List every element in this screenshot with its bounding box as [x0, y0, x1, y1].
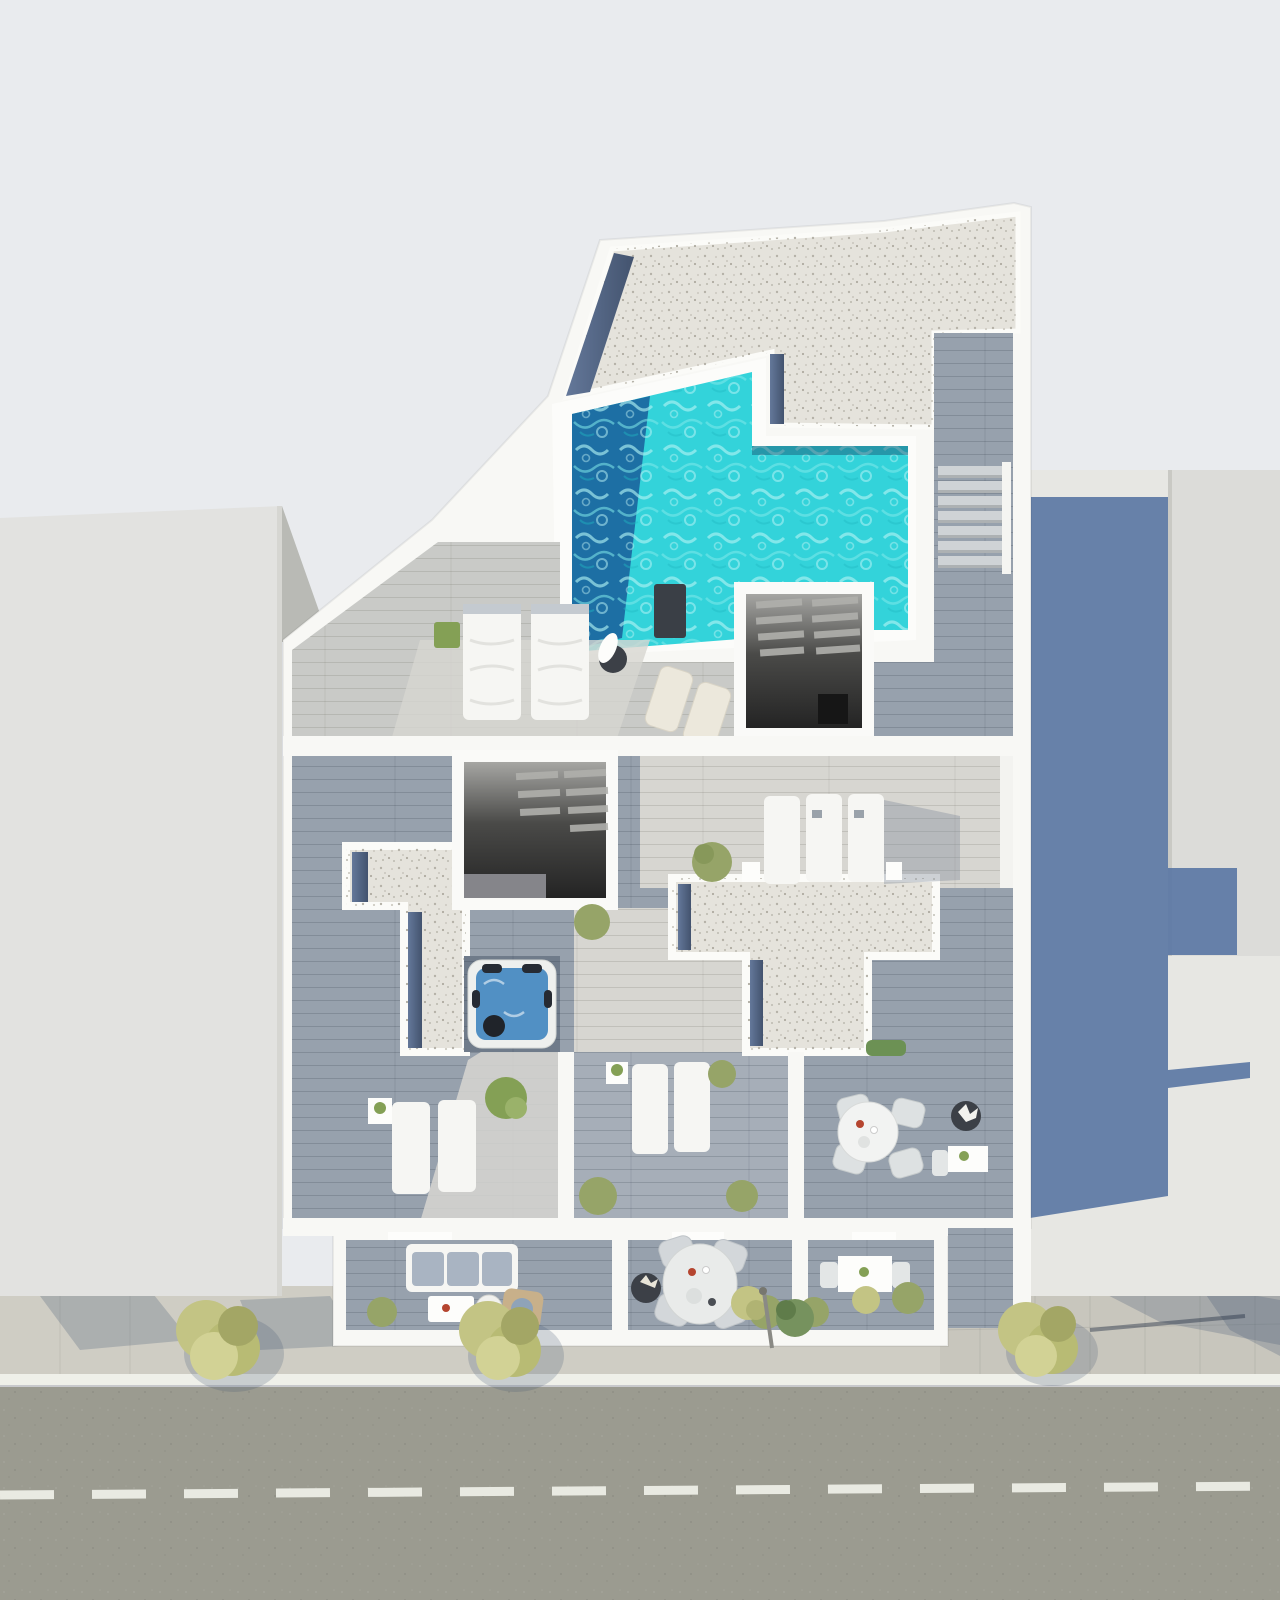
pool-arm-shadow-line [752, 446, 908, 455]
small-table [742, 862, 760, 882]
tree-small [852, 1286, 880, 1314]
round-dining-table [663, 1244, 737, 1324]
potted-plant [367, 1297, 397, 1327]
chair [932, 1150, 948, 1176]
stairwell-skylight-middle [452, 750, 618, 910]
sun-lounger [764, 796, 800, 884]
potted-plant [892, 1282, 924, 1314]
terrace-divider-wall [788, 1052, 804, 1222]
hot-tub-towel [483, 1015, 505, 1037]
planter-box [434, 622, 460, 648]
potted-plant [574, 904, 610, 940]
sun-lounger [674, 1062, 710, 1152]
potted-plant [579, 1177, 617, 1215]
hot-tub-area [464, 956, 560, 1052]
terrace-divider-wall [558, 1052, 574, 1222]
potted-plant [726, 1180, 758, 1212]
sun-lounger [848, 794, 884, 882]
render-canvas: Aerial 3D rendering of a residential bui… [0, 0, 1280, 1600]
sun-lounger [632, 1064, 668, 1154]
skylight-dark-shaft [818, 694, 848, 724]
dividing-wall-row [283, 736, 1013, 756]
stair-railing [1002, 462, 1011, 574]
chair [820, 1262, 838, 1288]
sun-lounger [806, 794, 842, 882]
sun-lounger [392, 1102, 430, 1194]
outdoor-shower [654, 584, 686, 638]
aerial-render [0, 0, 1280, 1600]
potted-plant [708, 1060, 736, 1088]
slate-notch-strip [770, 354, 784, 424]
front-balconies [346, 1232, 934, 1331]
skylight-floor-glimpse [464, 874, 546, 898]
tree-small [776, 1299, 814, 1337]
side-corridor-deck [934, 333, 1013, 662]
stairwell-skylight-upper [734, 582, 874, 740]
curb [0, 1374, 1280, 1385]
hedge [866, 1040, 906, 1056]
left-neighbor-building [0, 506, 330, 1296]
sun-lounger [438, 1100, 476, 1192]
small-table [886, 862, 902, 880]
